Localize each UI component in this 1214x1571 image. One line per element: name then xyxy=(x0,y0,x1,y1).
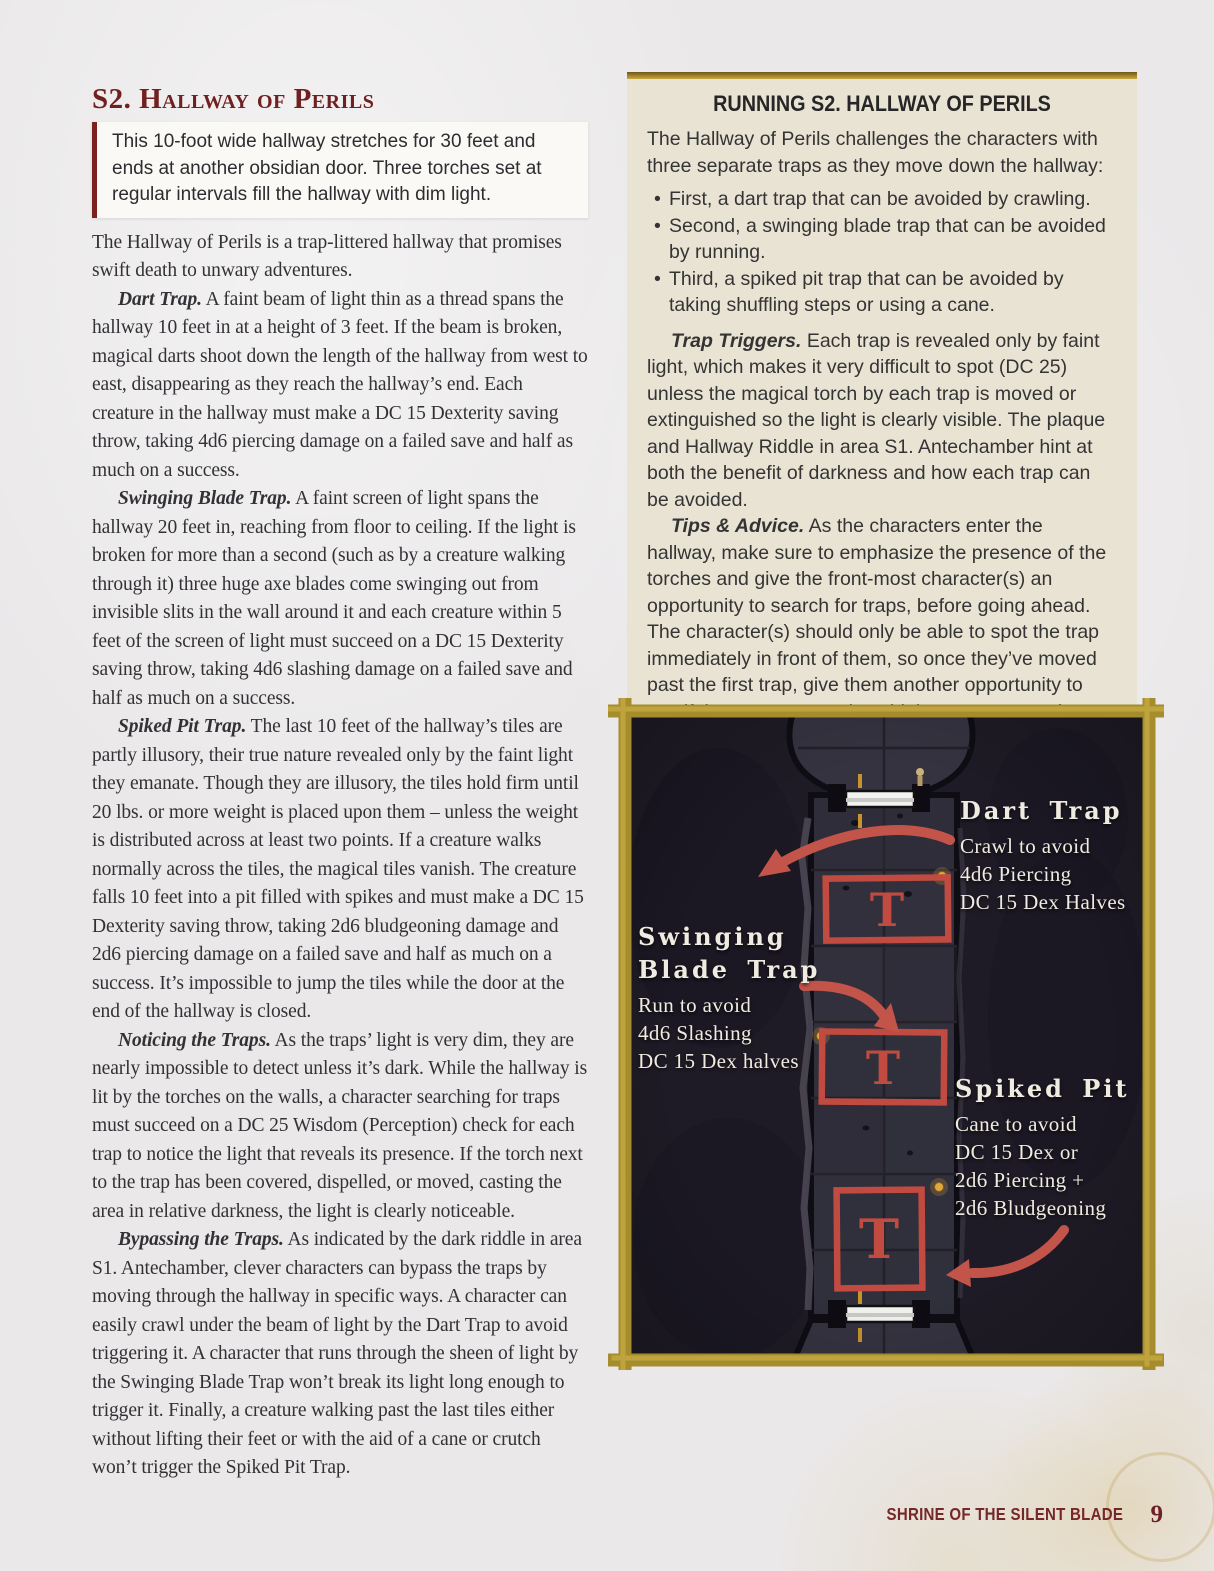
map-label-dart-trap: Dart Trap Crawl to avoid 4d6 Piercing DC… xyxy=(960,794,1160,916)
paragraph-bypassing-traps: Bypassing the Traps. As indicated by the… xyxy=(92,1226,588,1483)
sidebar-title: RUNNING S2. HALLWAY OF PERILS xyxy=(671,91,1094,117)
map-label-line: 4d6 Slashing xyxy=(638,1019,833,1047)
intro-paragraph: The Hallway of Perils is a trap-littered… xyxy=(92,229,588,286)
map-label-line: DC 15 Dex or xyxy=(955,1138,1160,1166)
read-aloud-box: This 10-foot wide hallway stretches for … xyxy=(92,122,588,218)
paragraph-text: A faint beam of light thin as a thread s… xyxy=(92,289,588,481)
paragraph-text: The last 10 feet of the hallway’s tiles … xyxy=(92,716,584,1022)
page-footer: SHRINE OF THE SILENT BLADE9 xyxy=(0,1501,1163,1529)
page: S2. Hallway of Perils This 10-foot wide … xyxy=(0,0,1214,1571)
section-heading: S2. Hallway of Perils xyxy=(92,84,588,114)
paragraph-text: As the traps’ light is very dim, they ar… xyxy=(92,1030,587,1222)
sidebar-bullet: Third, a spiked pit trap that can be avo… xyxy=(669,266,1117,319)
paragraph-dart-trap: Dart Trap. A faint beam of light thin as… xyxy=(92,286,588,486)
paragraph-spiked-pit-trap: Spiked Pit Trap. The last 10 feet of the… xyxy=(92,713,588,1027)
paragraph-noticing-traps: Noticing the Traps. As the traps’ light … xyxy=(92,1027,588,1227)
sidebar-intro: The Hallway of Perils challenges the cha… xyxy=(647,126,1117,179)
paragraph-text: A faint screen of light spans the hallwa… xyxy=(92,488,576,709)
book-title: SHRINE OF THE SILENT BLADE xyxy=(887,1504,1124,1525)
sidebar-bullet: Second, a swinging blade trap that can b… xyxy=(669,213,1117,266)
map-label-line: 2d6 Piercing + xyxy=(955,1166,1160,1194)
sidebar-paragraph-trap-triggers: Trap Triggers. Each trap is revealed onl… xyxy=(647,328,1117,514)
map-label-title: Dart Trap xyxy=(960,794,1160,827)
sidebar-box: RUNNING S2. HALLWAY OF PERILS The Hallwa… xyxy=(627,79,1137,768)
paragraph-text: Each trap is revealed only by faint ligh… xyxy=(647,330,1105,511)
map-label-line: Run to avoid xyxy=(638,991,833,1019)
paragraph-swinging-blade-trap: Swinging Blade Trap. A faint screen of l… xyxy=(92,485,588,713)
map-label-swinging-blade-trap: Swinging Blade Trap Run to avoid 4d6 Sla… xyxy=(638,920,833,1075)
read-aloud-text: This 10-foot wide hallway stretches for … xyxy=(112,129,576,209)
paragraph-lead: Spiked Pit Trap. xyxy=(118,716,246,737)
intro-text: The Hallway of Perils is a trap-littered… xyxy=(92,232,562,282)
map-label-line: Crawl to avoid xyxy=(960,832,1160,860)
sidebar-bullet: First, a dart trap that can be avoided b… xyxy=(669,186,1117,213)
paragraph-lead: Trap Triggers. xyxy=(671,330,801,352)
left-column: S2. Hallway of Perils This 10-foot wide … xyxy=(92,84,588,1483)
paragraph-lead: Dart Trap. xyxy=(118,289,202,310)
dungeon-map: T T T xyxy=(608,698,1164,1370)
map-label-line: 2d6 Bludgeoning xyxy=(955,1194,1160,1222)
map-label-line: Cane to avoid xyxy=(955,1110,1160,1138)
map-label-line: DC 15 Dex halves xyxy=(638,1047,833,1075)
sidebar-bullet-list: First, a dart trap that can be avoided b… xyxy=(647,186,1117,319)
map-label-spiked-pit: Spiked Pit Cane to avoid DC 15 Dex or 2d… xyxy=(955,1072,1160,1222)
map-label-line: 4d6 Piercing xyxy=(960,860,1160,888)
paragraph-text: As indicated by the dark riddle in area … xyxy=(92,1229,582,1478)
paragraph-lead: Bypassing the Traps. xyxy=(118,1229,284,1250)
page-number: 9 xyxy=(1151,1501,1164,1529)
map-label-title: Spiked Pit xyxy=(955,1072,1160,1105)
paragraph-lead: Swinging Blade Trap. xyxy=(118,488,291,509)
map-label-line: DC 15 Dex Halves xyxy=(960,888,1160,916)
paragraph-lead: Noticing the Traps. xyxy=(118,1030,271,1051)
paragraph-lead: Tips & Advice. xyxy=(671,515,804,537)
map-label-title: Swinging Blade Trap xyxy=(638,920,833,986)
